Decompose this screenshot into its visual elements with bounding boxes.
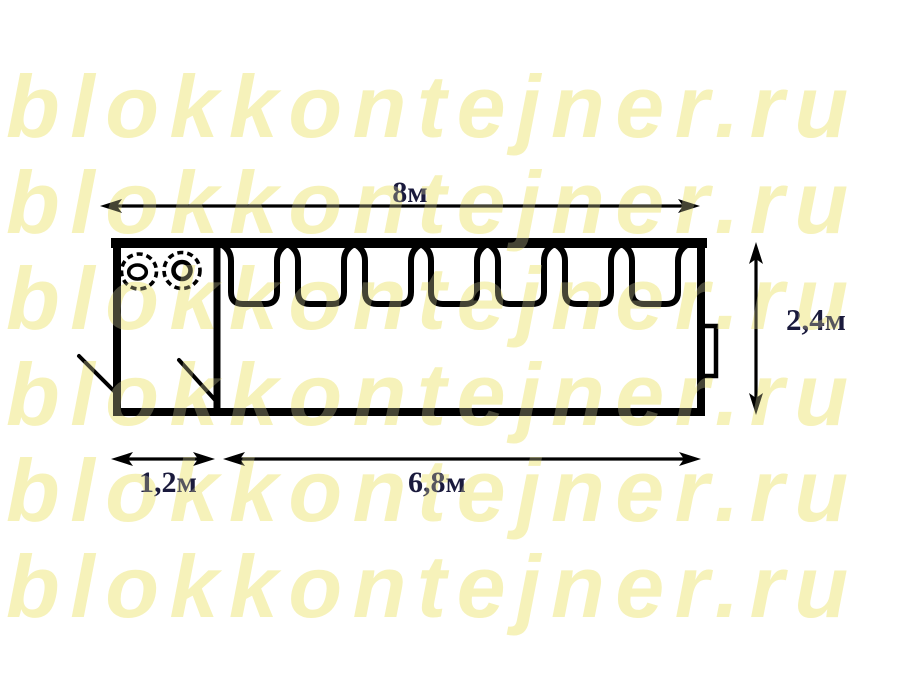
stove-burner-left-inner (129, 265, 147, 279)
dim-label-total-length: 8м (392, 176, 427, 209)
dim-total-length: 8м (100, 176, 700, 213)
door-swings (79, 356, 216, 401)
dim-small-room: 1,2м (111, 452, 215, 499)
stove-symbol (122, 253, 201, 290)
window-3 (354, 244, 422, 304)
window-7 (621, 244, 689, 304)
window-4 (420, 244, 488, 304)
window-6 (554, 244, 622, 304)
floor-plan-diagram: 8м 2,4м 1,2м 6,8м (0, 0, 900, 675)
stove-burner-right-outer (164, 253, 200, 289)
dim-large-room: 6,8м (223, 452, 701, 499)
dim-label-small-room: 1,2м (139, 466, 197, 499)
stove-burner-right-inner (174, 262, 191, 279)
window-1 (220, 244, 288, 304)
right-end-door (702, 326, 716, 376)
window-5 (487, 244, 555, 304)
door-swing-partition (179, 360, 216, 401)
dim-label-large-room: 6,8м (408, 466, 466, 499)
door-swing-exterior (79, 356, 117, 394)
stove-burner-left-outer (122, 254, 157, 289)
window-row (220, 244, 689, 304)
window-2 (287, 244, 355, 304)
dim-label-height: 2,4м (786, 302, 846, 337)
page: blokkontejner.ru blokkontejner.ru blokko… (0, 0, 900, 675)
dim-height: 2,4м (749, 242, 846, 415)
